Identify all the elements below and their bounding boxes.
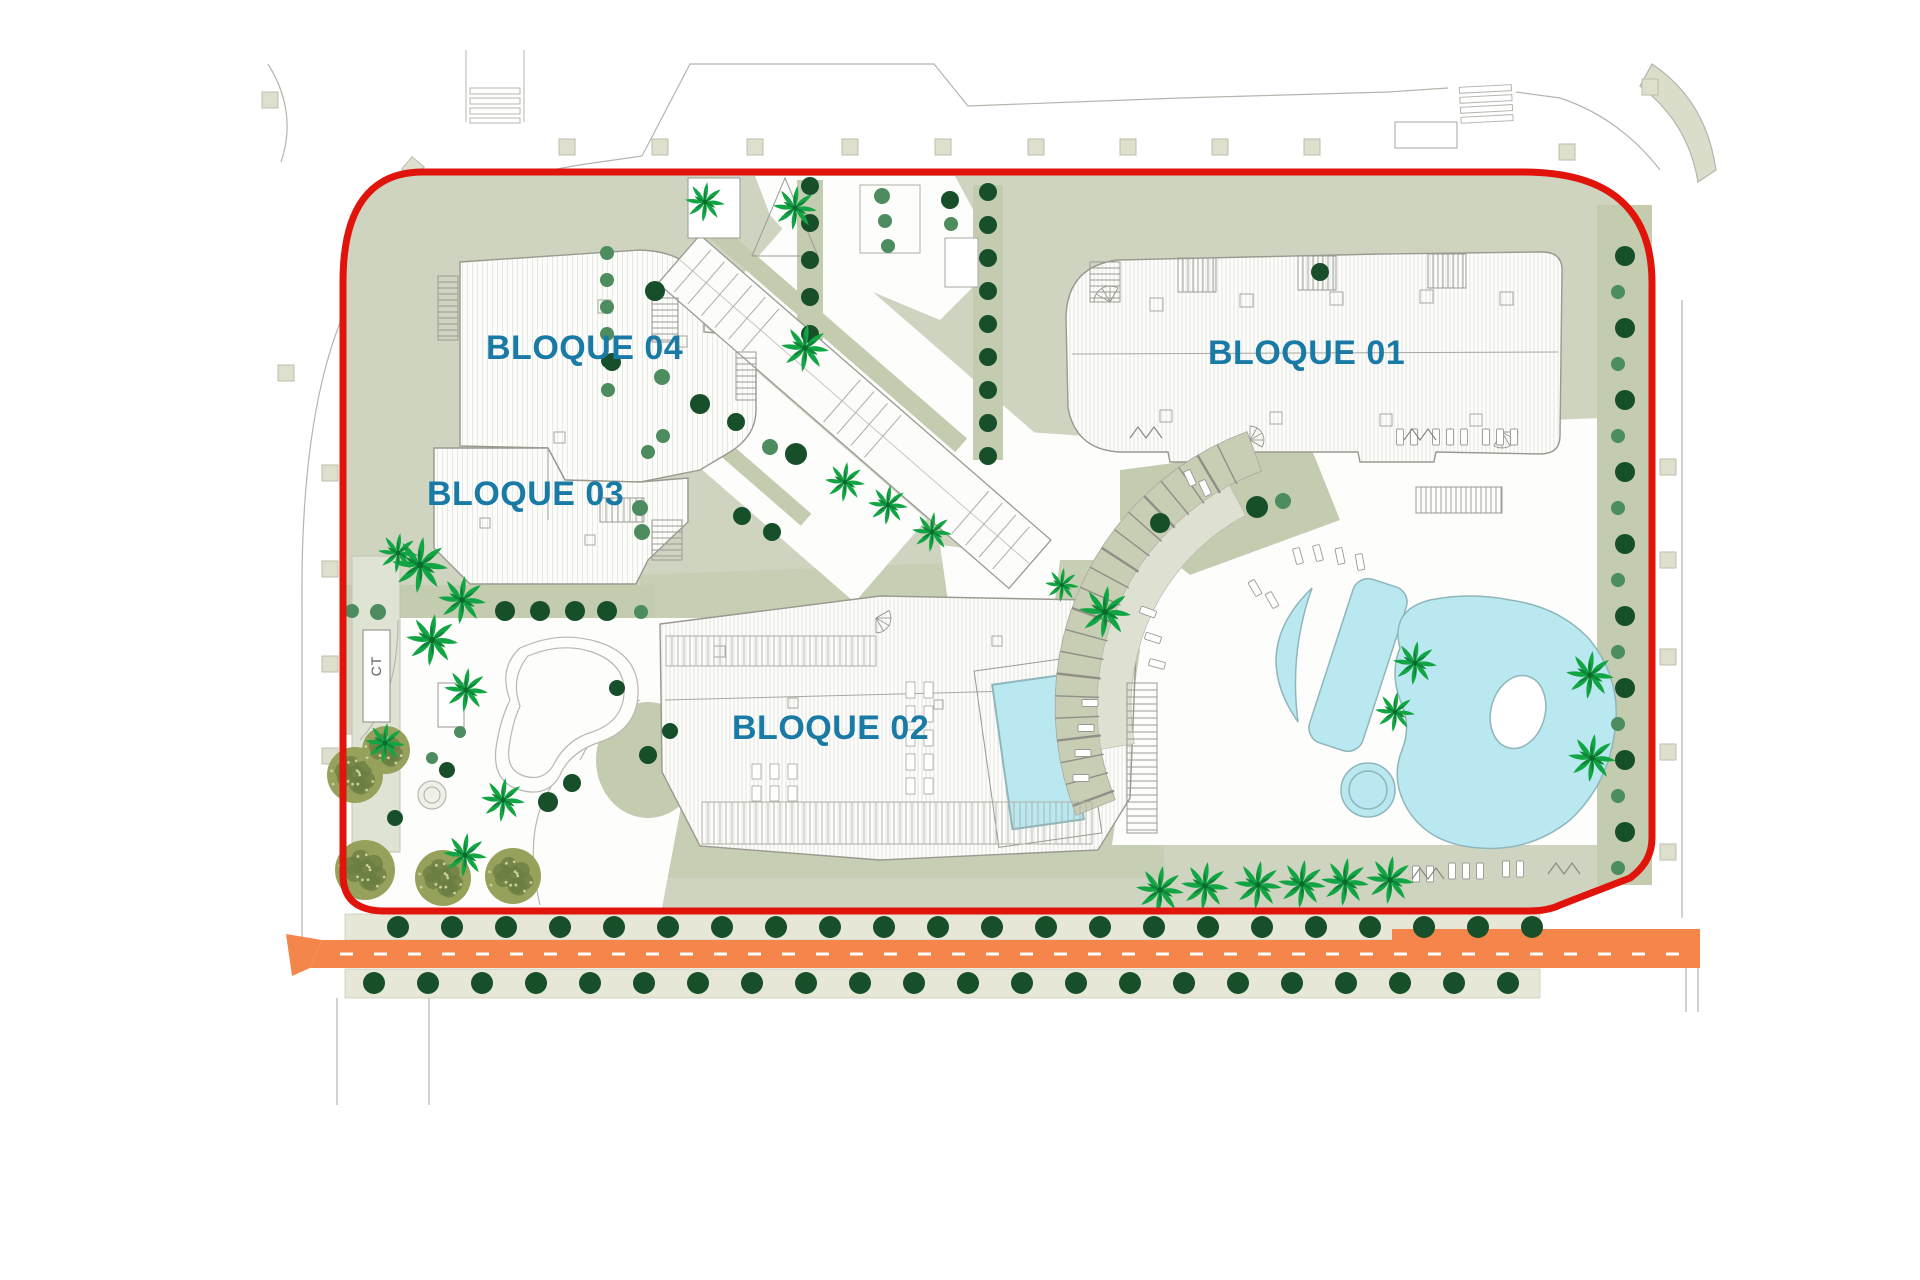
tree-icon: [944, 217, 958, 231]
tree-icon: [600, 300, 614, 314]
tree-icon: [639, 746, 657, 764]
tree-icon: [1615, 462, 1635, 482]
sun-lounger-icon: [1078, 725, 1094, 732]
tree-icon: [495, 601, 515, 621]
street-marker-icon: [322, 561, 338, 577]
tree-icon: [762, 439, 778, 455]
sun-lounger-icon: [1503, 861, 1510, 877]
tree-icon: [1197, 916, 1219, 938]
tree-icon: [979, 447, 997, 465]
tree-icon: [873, 916, 895, 938]
street-marker-icon: [935, 139, 951, 155]
street-marker-icon: [322, 656, 338, 672]
tree-icon: [530, 601, 550, 621]
tree-icon: [1521, 916, 1543, 938]
tree-icon: [711, 916, 733, 938]
tree-icon: [801, 251, 819, 269]
tree-icon: [439, 762, 455, 778]
bloque01-west-hedge-row: [979, 183, 997, 465]
tree-icon: [656, 429, 670, 443]
crosswalk-north-west: [466, 50, 524, 123]
tree-icon: [609, 680, 625, 696]
tree-icon: [1615, 246, 1635, 266]
tree-icon: [1615, 750, 1635, 770]
tree-icon: [727, 413, 745, 431]
tree-icon: [1389, 972, 1411, 994]
tree-icon: [927, 916, 949, 938]
tree-icon: [1611, 285, 1625, 299]
tree-icon: [741, 972, 763, 994]
tree-icon: [1611, 861, 1625, 875]
street-marker-icon: [1660, 459, 1676, 475]
street-marker-icon: [652, 139, 668, 155]
tree-icon: [603, 916, 625, 938]
street-marker-icon: [747, 139, 763, 155]
street-marker-icon: [1028, 139, 1044, 155]
tree-icon: [1246, 496, 1268, 518]
sun-lounger-icon: [1449, 863, 1456, 879]
tree-icon: [979, 249, 997, 267]
tree-icon: [632, 500, 648, 516]
tree-icon: [1035, 916, 1057, 938]
tree-icon: [795, 972, 817, 994]
tree-icon: [1615, 678, 1635, 698]
street-marker-icon: [1660, 744, 1676, 760]
tree-icon: [641, 445, 655, 459]
tree-icon: [654, 369, 670, 385]
tree-icon: [1611, 789, 1625, 803]
tree-icon: [441, 916, 463, 938]
olive-tree-icon: [485, 848, 541, 904]
sun-lounger-icon: [1082, 700, 1098, 707]
tree-icon: [1089, 916, 1111, 938]
sun-lounger-icon: [1073, 775, 1089, 782]
tree-icon: [538, 792, 558, 812]
tree-icon: [1611, 501, 1625, 515]
tree-icon: [979, 381, 997, 399]
tree-icon: [981, 916, 1003, 938]
tree-icon: [495, 916, 517, 938]
tree-icon: [819, 916, 841, 938]
tree-icon: [1305, 916, 1327, 938]
tree-icon: [597, 601, 617, 621]
tree-icon: [1615, 318, 1635, 338]
street-marker-icon: [1212, 139, 1228, 155]
tree-icon: [1335, 972, 1357, 994]
tree-icon: [525, 972, 547, 994]
tree-icon: [454, 726, 466, 738]
tree-icon: [387, 810, 403, 826]
tree-icon: [979, 414, 997, 432]
crosswalk-north-east: [1459, 85, 1513, 124]
tree-icon: [903, 972, 925, 994]
sun-lounger-icon: [1463, 863, 1470, 879]
tree-icon: [874, 188, 890, 204]
tree-icon: [1611, 717, 1625, 731]
site-plan-canvas: BLOQUE 01 BLOQUE 02 BLOQUE 03 BLOQUE 04 …: [0, 0, 1920, 1280]
tree-icon: [645, 281, 665, 301]
tree-icon: [1359, 916, 1381, 938]
street-marker-icon: [322, 465, 338, 481]
tree-icon: [957, 972, 979, 994]
label-bloque-04: BLOQUE 04: [486, 331, 683, 365]
tree-icon: [979, 282, 997, 300]
tree-icon: [1143, 916, 1165, 938]
tree-icon: [1615, 606, 1635, 626]
tree-icon: [979, 315, 997, 333]
sun-lounger-icon: [1483, 429, 1490, 445]
sun-lounger-icon: [1477, 863, 1484, 879]
site-plan-drawing: [0, 0, 1920, 1280]
tree-icon: [1275, 493, 1291, 509]
tree-icon: [1011, 972, 1033, 994]
street-marker-icon: [262, 92, 278, 108]
tree-icon: [363, 972, 385, 994]
tree-icon: [979, 348, 997, 366]
tree-icon: [1611, 573, 1625, 587]
tree-icon: [634, 605, 648, 619]
tree-icon: [1311, 263, 1329, 281]
tree-icon: [878, 214, 892, 228]
tree-icon: [662, 723, 678, 739]
tree-icon: [345, 604, 359, 618]
tree-icon: [785, 443, 807, 465]
sun-lounger-icon: [1397, 429, 1404, 445]
tree-icon: [579, 972, 601, 994]
tree-icon: [417, 972, 439, 994]
tree-icon: [1413, 916, 1435, 938]
label-ct-transformer: CT: [368, 642, 384, 690]
street-marker-icon: [1660, 552, 1676, 568]
tree-icon: [979, 183, 997, 201]
tree-icon: [733, 507, 751, 525]
tree-icon: [563, 774, 581, 792]
tree-icon: [941, 191, 959, 209]
tree-icon: [687, 972, 709, 994]
tree-icon: [1065, 972, 1087, 994]
tree-icon: [600, 246, 614, 260]
street-marker-icon: [1642, 79, 1658, 95]
sun-lounger-icon: [1075, 750, 1091, 757]
tree-icon: [1611, 357, 1625, 371]
sun-lounger-icon: [1517, 861, 1524, 877]
tree-icon: [801, 288, 819, 306]
tree-icon: [426, 752, 438, 764]
tree-icon: [657, 916, 679, 938]
tree-icon: [1119, 972, 1141, 994]
tree-icon: [690, 394, 710, 414]
tree-icon: [565, 601, 585, 621]
sun-lounger-icon: [1497, 429, 1504, 445]
tree-icon: [387, 916, 409, 938]
tree-icon: [549, 916, 571, 938]
street-marker-icon: [1559, 144, 1575, 160]
label-bloque-01: BLOQUE 01: [1208, 336, 1405, 370]
tree-icon: [1467, 916, 1489, 938]
tree-icon: [1443, 972, 1465, 994]
tree-icon: [1150, 513, 1170, 533]
street-marker-icon: [1120, 139, 1136, 155]
street-marker-icon: [842, 139, 858, 155]
tree-icon: [1615, 534, 1635, 554]
street-marker-icon: [278, 365, 294, 381]
sun-lounger-icon: [1427, 866, 1434, 882]
tree-icon: [881, 239, 895, 253]
tree-icon: [1227, 972, 1249, 994]
tree-icon: [979, 216, 997, 234]
tree-icon: [1173, 972, 1195, 994]
street-marker-icon: [1660, 649, 1676, 665]
tree-icon: [370, 604, 386, 620]
tree-icon: [765, 916, 787, 938]
tree-icon: [1615, 390, 1635, 410]
tree-icon: [633, 972, 655, 994]
tree-icon: [1615, 822, 1635, 842]
tree-icon: [600, 273, 614, 287]
label-bloque-02: BLOQUE 02: [732, 711, 929, 745]
tree-icon: [1281, 972, 1303, 994]
sun-lounger-icon: [1447, 429, 1454, 445]
tree-icon: [1497, 972, 1519, 994]
tree-icon: [1251, 916, 1273, 938]
label-bloque-03: BLOQUE 03: [427, 477, 624, 511]
street-marker-icon: [1660, 844, 1676, 860]
tree-icon: [801, 177, 819, 195]
tree-icon: [763, 523, 781, 541]
tree-icon: [634, 524, 650, 540]
sun-lounger-icon: [1511, 429, 1518, 445]
tree-icon: [1611, 645, 1625, 659]
tree-icon: [471, 972, 493, 994]
tree-icon: [1611, 429, 1625, 443]
tree-icon: [601, 383, 615, 397]
tree-icon: [849, 972, 871, 994]
sun-lounger-icon: [1461, 429, 1468, 445]
street-marker-icon: [1304, 139, 1320, 155]
street-marker-icon: [559, 139, 575, 155]
